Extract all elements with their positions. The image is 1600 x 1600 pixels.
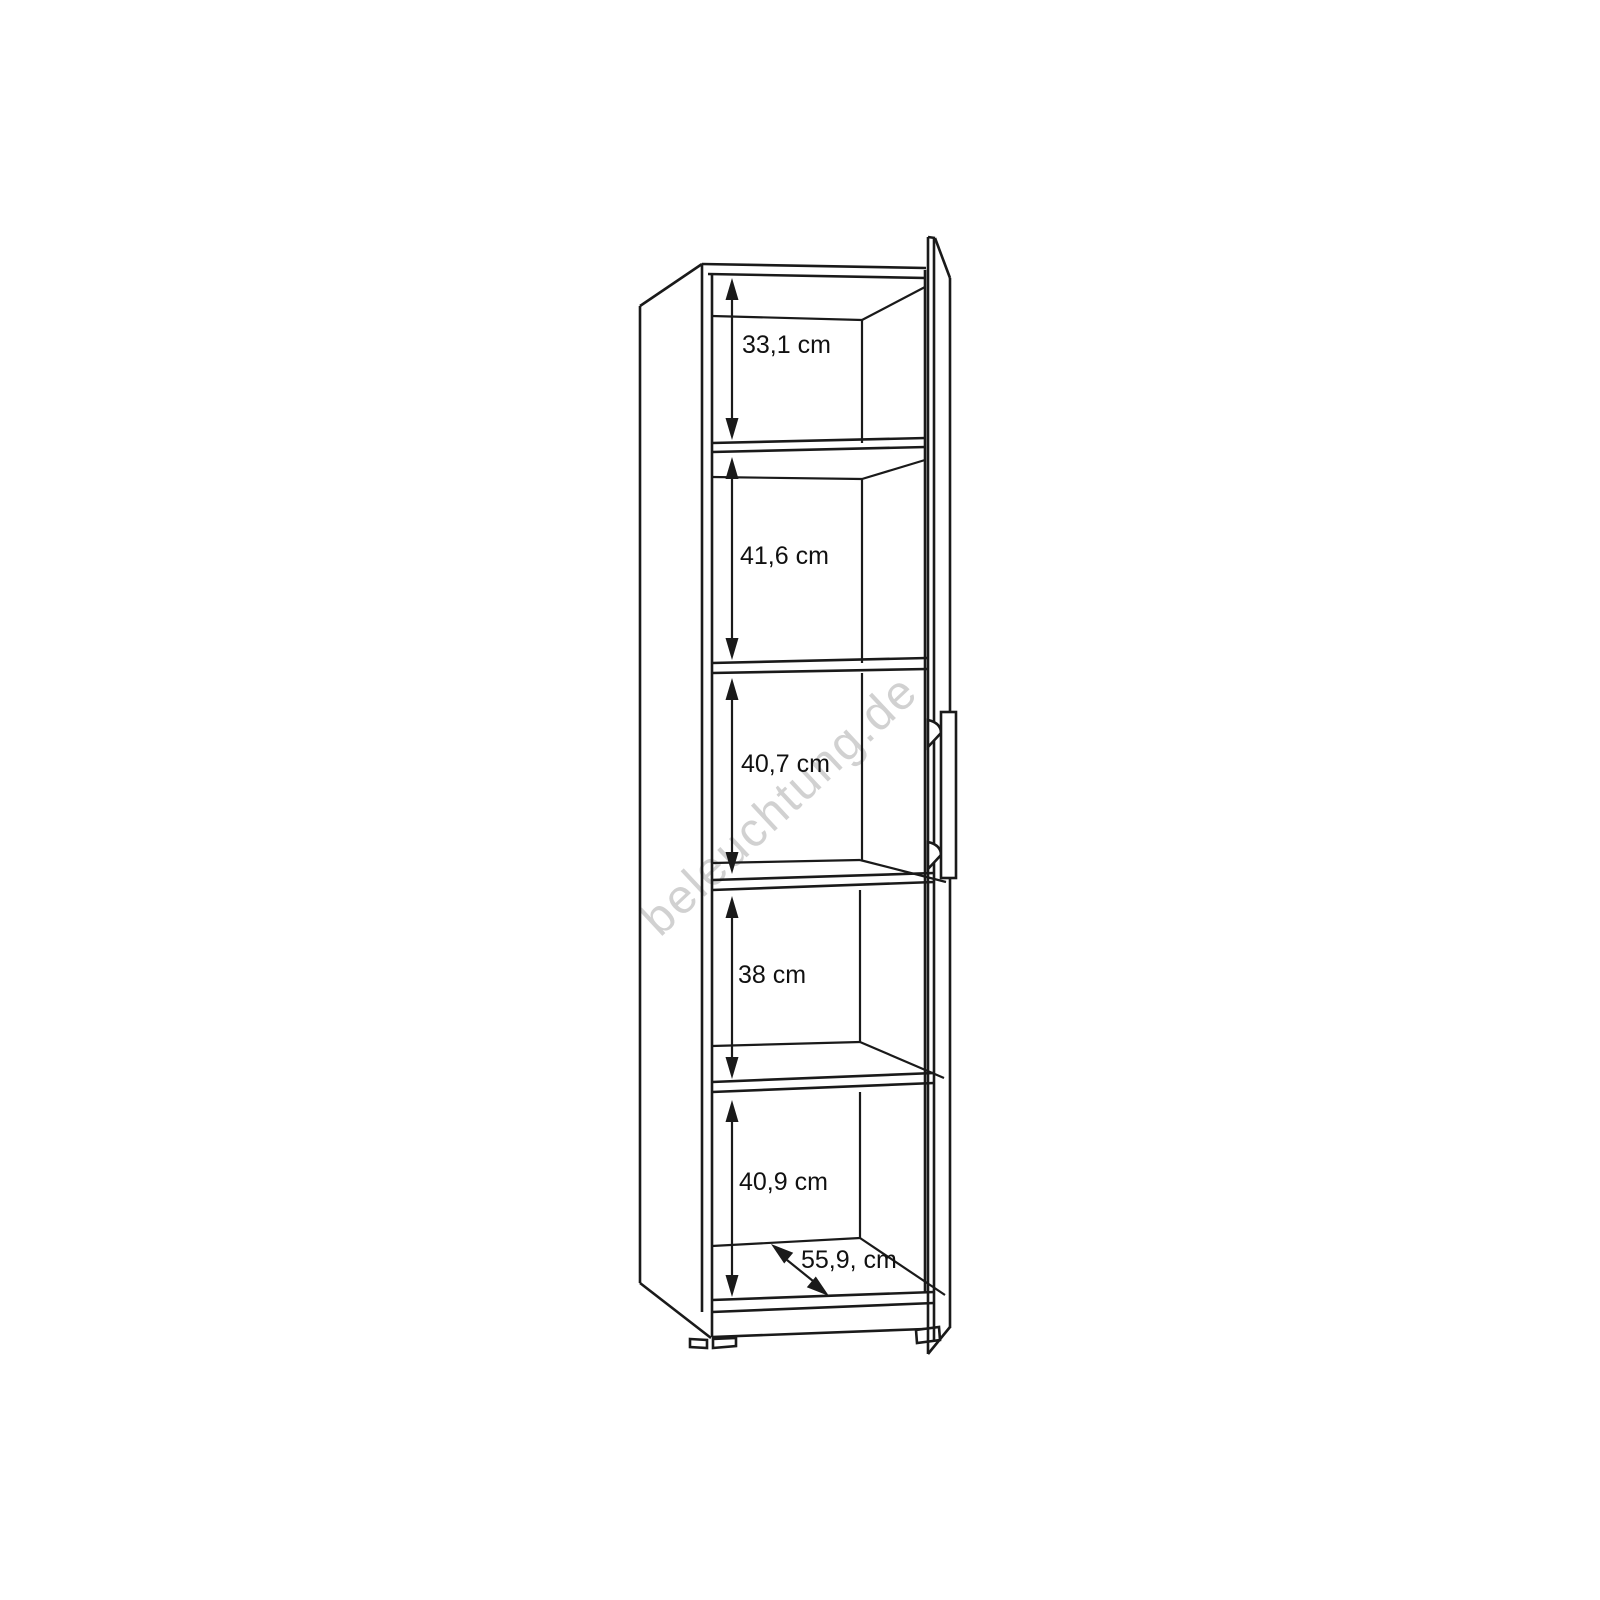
watermark: beleuchtung.de [631,664,928,946]
wardrobe-dimension-diagram: beleuchtung.de [0,0,1600,1600]
foot [690,1339,707,1348]
dimension-label-depth: 55,9, cm [801,1246,897,1274]
shelf [712,1042,944,1238]
dimension-label-compartment-2: 41,6 cm [740,542,829,570]
dimension-label-compartment-3: 40,7 cm [741,750,830,778]
dimension-label-compartment-4: 38 cm [738,961,806,989]
shelf [712,860,946,1042]
dimension-arrow-compartment-4 [726,896,739,1079]
dimension-arrow-compartment-2 [726,457,739,660]
foot [713,1338,736,1348]
dimension-arrow-compartment-1 [726,278,739,440]
dimension-label-compartment-1: 33,1 cm [742,331,831,359]
open-door [928,237,956,1354]
left-side-panel [640,264,712,1338]
cabinet-line-drawing: beleuchtung.de [0,0,1600,1600]
dimension-label-compartment-5: 40,9 cm [739,1168,828,1196]
door-handle [941,712,956,878]
watermark-text: beleuchtung.de [631,664,928,946]
dimension-arrow-compartment-5 [726,1100,739,1297]
